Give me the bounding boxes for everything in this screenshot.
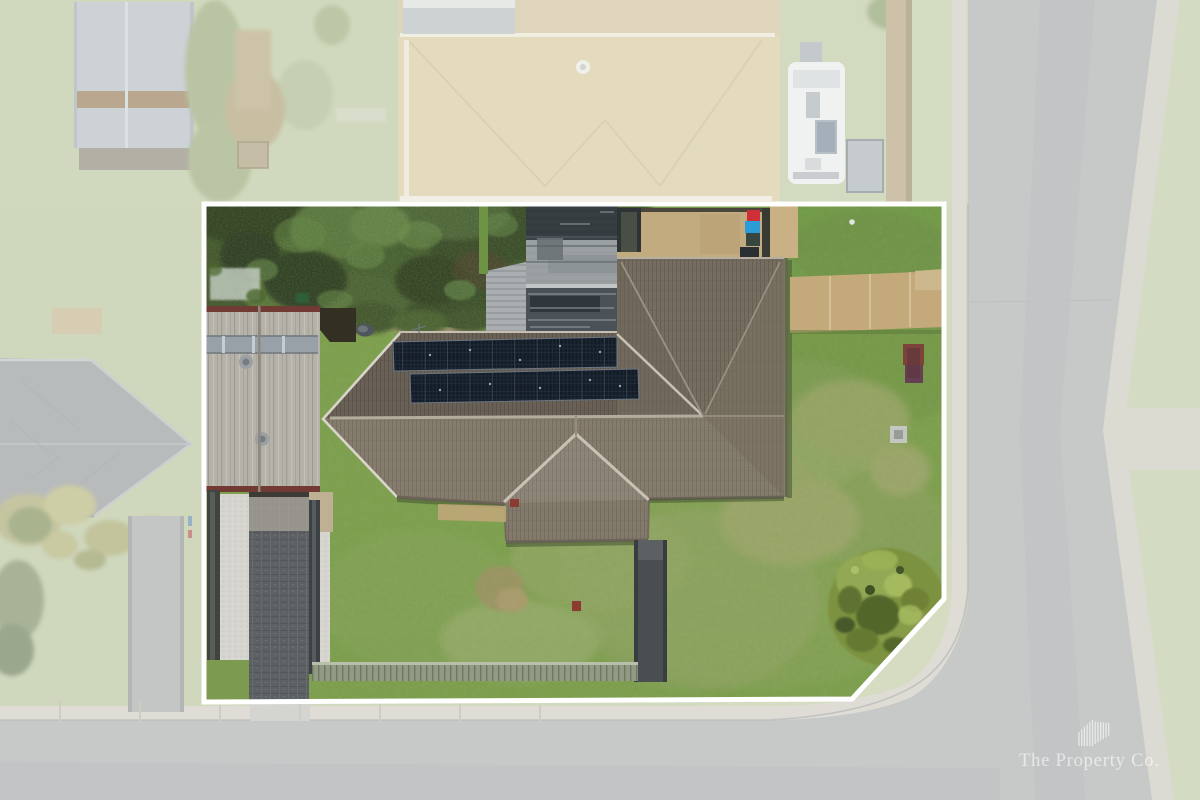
svg-text:The Property Co.: The Property Co. [1019,751,1160,771]
